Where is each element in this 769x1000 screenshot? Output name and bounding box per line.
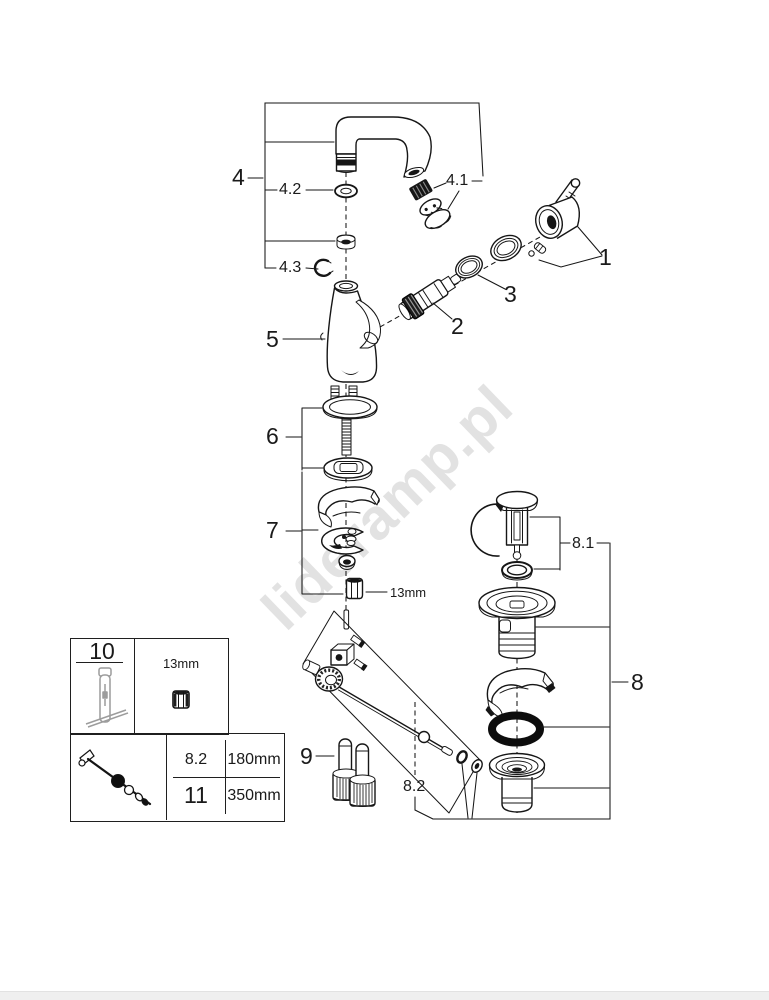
label-part-9: 9 (300, 745, 313, 768)
lift-rod-assembly-part-8-2 (301, 611, 484, 813)
label-part-4-3: 4.3 (279, 260, 301, 276)
bushing (337, 235, 355, 249)
legend-row-part-11: 11 (172, 784, 220, 807)
retaining-clip-part-4-3 (315, 260, 333, 276)
popup-drain-part-8 (471, 492, 555, 813)
legend-nut-size: 13mm (155, 657, 207, 670)
o-ring-part-4-2 (335, 185, 357, 198)
label-wrench-size: 13mm (390, 586, 426, 599)
spout-part-4 (336, 117, 431, 180)
screw-pin (344, 610, 349, 629)
label-part-3: 3 (504, 283, 517, 306)
legend-row-length-350: 350mm (226, 788, 282, 804)
lift-rod-icon (74, 740, 164, 816)
socket-wrench-icon (82, 666, 132, 730)
label-part-1: 1 (599, 246, 612, 269)
hex-nut-icon (168, 684, 194, 712)
legend-tool-number-underline (76, 662, 123, 663)
handle-part-1 (529, 179, 580, 256)
label-part-4-2: 4.2 (279, 182, 301, 198)
legend-row-part-8-2: 8.2 (172, 752, 220, 768)
label-part-6: 6 (266, 425, 279, 448)
label-part-8-2: 8.2 (403, 779, 425, 795)
exploded-diagram-drawing (0, 0, 769, 1000)
legend-tool-box-divider (134, 638, 135, 733)
label-part-4-1: 4.1 (446, 173, 468, 189)
label-part-8: 8 (631, 671, 644, 694)
seal-rings-part-3 (452, 230, 525, 282)
supply-hoses-part-9 (333, 739, 375, 807)
legend-table-horizontal-divider (173, 777, 280, 778)
label-part-2: 2 (451, 315, 464, 338)
label-part-5: 5 (266, 328, 279, 351)
mounting-hardware-part-6 (323, 386, 377, 481)
exploded-parts-diagram-page: lideramp.pl (0, 0, 769, 1000)
label-part-8-1: 8.1 (572, 536, 594, 552)
label-part-4: 4 (232, 166, 245, 189)
label-part-7: 7 (266, 519, 279, 542)
legend-tool-number: 10 (80, 640, 124, 663)
faucet-body-part-5 (321, 281, 381, 382)
legend-rod-box-divider (166, 733, 167, 820)
legend-row-length-180: 180mm (226, 752, 282, 768)
clamp-set-part-7 (318, 487, 379, 599)
